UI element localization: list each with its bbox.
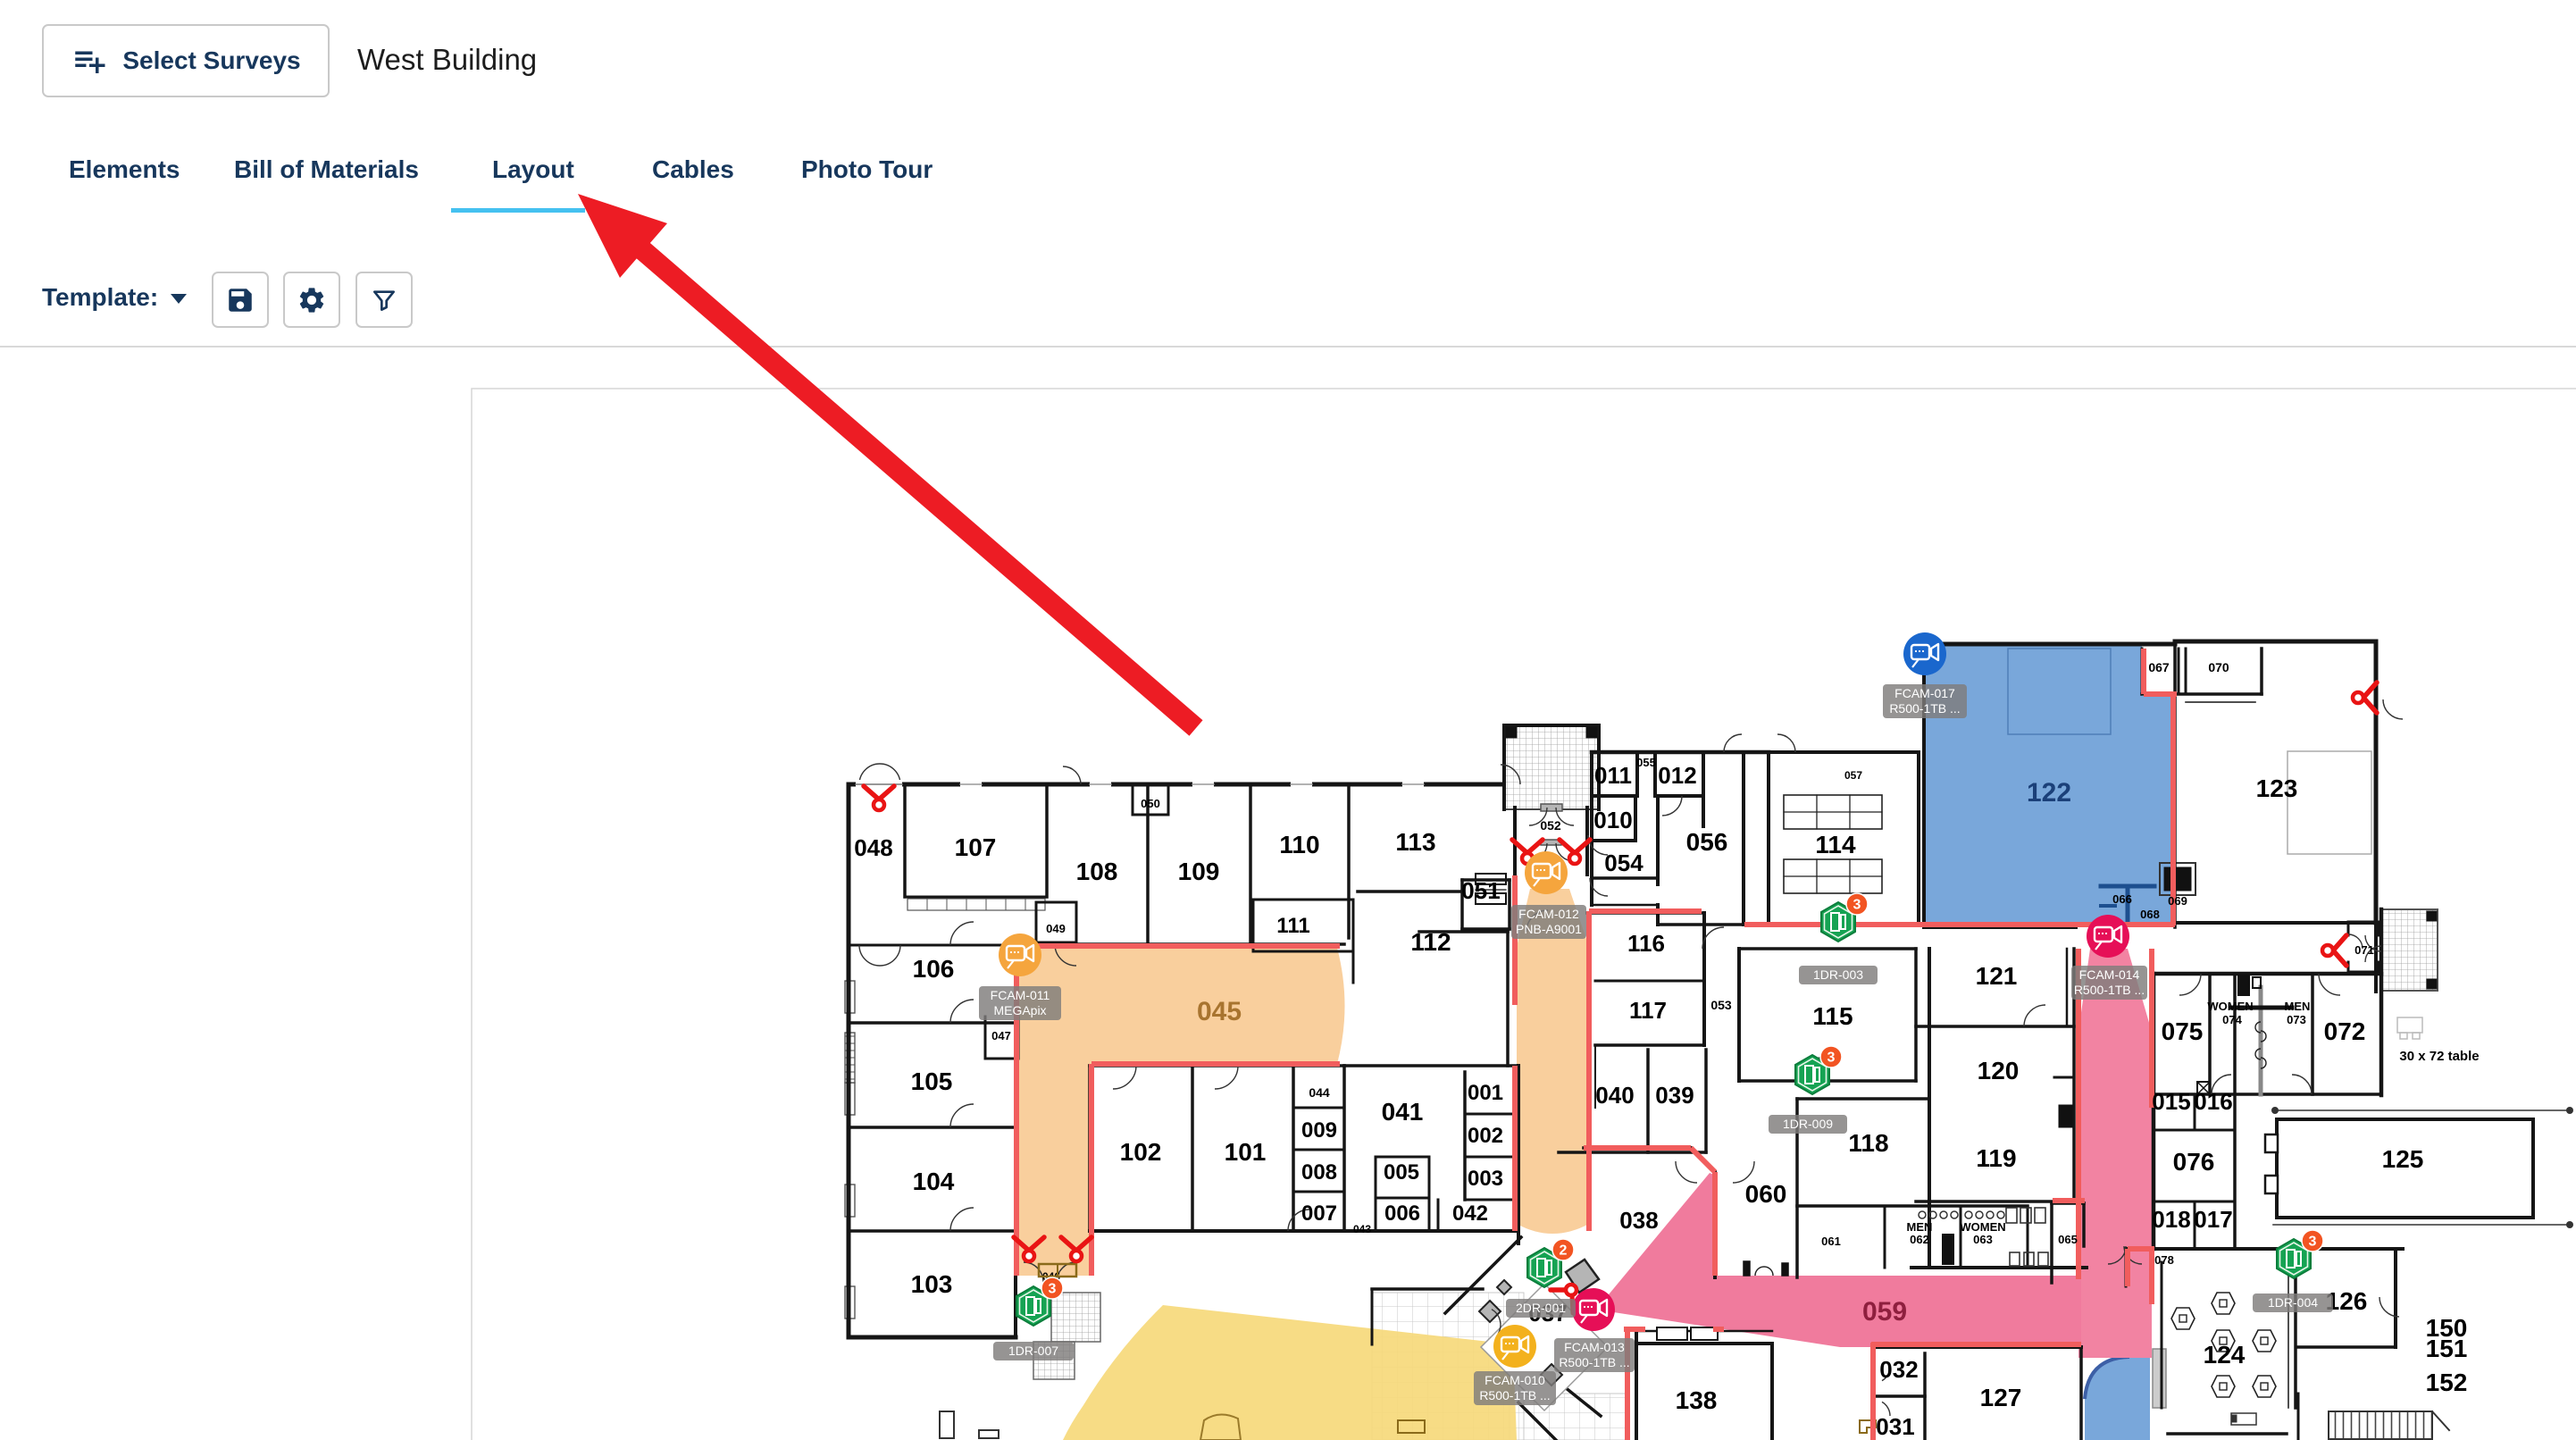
svg-text:R500-1TB ...: R500-1TB ... <box>2074 983 2145 997</box>
svg-text:3: 3 <box>2309 1235 2317 1250</box>
svg-text:010: 010 <box>1593 807 1632 833</box>
svg-text:1DR-009: 1DR-009 <box>1783 1117 1833 1131</box>
svg-text:065: 065 <box>2058 1233 2078 1246</box>
svg-text:3: 3 <box>1827 1051 1836 1066</box>
svg-text:053: 053 <box>1710 998 1732 1012</box>
svg-text:063: 063 <box>1973 1233 1993 1246</box>
svg-text:138: 138 <box>1676 1386 1718 1414</box>
svg-text:016: 016 <box>2194 1088 2232 1115</box>
svg-text:WOMEN: WOMEN <box>2207 1000 2253 1013</box>
svg-text:PNB-A9001: PNB-A9001 <box>1516 922 1582 936</box>
svg-text:006: 006 <box>1384 1201 1420 1226</box>
svg-text:043: 043 <box>1353 1223 1371 1235</box>
svg-text:032: 032 <box>1879 1356 1918 1383</box>
svg-text:120: 120 <box>1978 1057 2020 1084</box>
svg-text:1DR-004: 1DR-004 <box>2268 1295 2318 1310</box>
svg-text:FCAM-011: FCAM-011 <box>991 988 1050 1002</box>
svg-text:049: 049 <box>1046 922 1066 935</box>
svg-text:048: 048 <box>854 834 892 861</box>
svg-text:FCAM-012: FCAM-012 <box>1518 907 1579 921</box>
svg-text:30 x 72 table: 30 x 72 table <box>2399 1049 2479 1064</box>
svg-text:009: 009 <box>1301 1118 1337 1143</box>
svg-text:114: 114 <box>1815 831 1856 858</box>
svg-text:127: 127 <box>1980 1384 2022 1411</box>
svg-text:069: 069 <box>2168 894 2187 908</box>
svg-text:002: 002 <box>1468 1124 1503 1148</box>
svg-text:051: 051 <box>1461 877 1500 904</box>
svg-text:2DR-001: 2DR-001 <box>1516 1301 1566 1315</box>
svg-text:075: 075 <box>2162 1017 2204 1045</box>
svg-text:073: 073 <box>2287 1013 2306 1026</box>
svg-text:117: 117 <box>1629 997 1667 1024</box>
svg-text:031: 031 <box>1876 1413 1914 1440</box>
svg-text:067: 067 <box>2148 660 2170 674</box>
svg-text:060: 060 <box>1745 1180 1787 1208</box>
svg-text:108: 108 <box>1076 858 1118 885</box>
svg-text:MEGApix: MEGApix <box>993 1003 1046 1017</box>
svg-text:110: 110 <box>1279 831 1319 858</box>
svg-text:FCAM-014: FCAM-014 <box>2079 967 2140 982</box>
svg-text:3: 3 <box>1049 1282 1057 1297</box>
svg-text:106: 106 <box>913 955 955 983</box>
svg-text:WOMEN: WOMEN <box>1960 1220 2005 1234</box>
svg-text:008: 008 <box>1301 1160 1337 1185</box>
svg-text:113: 113 <box>1395 828 1435 856</box>
svg-text:119: 119 <box>1976 1144 2016 1172</box>
svg-text:R500-1TB ...: R500-1TB ... <box>1559 1355 1629 1369</box>
svg-text:062: 062 <box>1910 1233 1929 1246</box>
svg-text:116: 116 <box>1627 930 1665 957</box>
svg-text:115: 115 <box>1812 1002 1853 1030</box>
svg-text:MEN: MEN <box>1907 1220 1933 1234</box>
svg-text:R500-1TB ...: R500-1TB ... <box>1479 1388 1550 1402</box>
svg-text:078: 078 <box>2154 1253 2174 1267</box>
svg-text:103: 103 <box>911 1270 953 1298</box>
svg-text:122: 122 <box>2027 778 2071 808</box>
svg-text:109: 109 <box>1178 858 1220 885</box>
svg-text:124: 124 <box>2204 1341 2246 1369</box>
svg-text:012: 012 <box>1658 762 1696 789</box>
svg-text:3: 3 <box>1853 898 1861 913</box>
svg-text:104: 104 <box>913 1168 955 1195</box>
svg-text:118: 118 <box>1848 1129 1888 1157</box>
svg-text:112: 112 <box>1410 928 1451 956</box>
svg-text:054: 054 <box>1604 850 1643 876</box>
svg-text:015: 015 <box>2152 1088 2190 1115</box>
svg-text:125: 125 <box>2382 1145 2424 1173</box>
svg-text:055: 055 <box>1636 756 1656 769</box>
svg-text:038: 038 <box>1619 1207 1658 1234</box>
svg-text:071: 071 <box>2354 943 2374 957</box>
svg-text:044: 044 <box>1309 1085 1330 1100</box>
svg-text:005: 005 <box>1384 1160 1419 1185</box>
svg-text:111: 111 <box>1276 914 1309 938</box>
svg-text:121: 121 <box>1976 962 2018 990</box>
svg-text:072: 072 <box>2324 1017 2366 1045</box>
svg-text:052: 052 <box>1540 818 1561 833</box>
svg-text:056: 056 <box>1686 828 1728 856</box>
svg-text:068: 068 <box>2140 908 2160 921</box>
svg-text:039: 039 <box>1655 1082 1694 1109</box>
svg-text:059: 059 <box>1862 1297 1907 1327</box>
svg-text:040: 040 <box>1595 1082 1634 1109</box>
svg-text:R500-1TB ...: R500-1TB ... <box>1889 701 1960 716</box>
svg-text:018: 018 <box>2152 1206 2190 1233</box>
svg-text:011: 011 <box>1594 762 1632 789</box>
svg-text:1DR-007: 1DR-007 <box>1008 1344 1058 1358</box>
svg-text:FCAM-017: FCAM-017 <box>1894 686 1955 700</box>
svg-text:061: 061 <box>1821 1235 1841 1248</box>
svg-text:074: 074 <box>2222 1013 2242 1026</box>
svg-text:152: 152 <box>2426 1369 2468 1396</box>
svg-text:107: 107 <box>955 833 997 861</box>
svg-text:102: 102 <box>1120 1138 1162 1166</box>
svg-text:151: 151 <box>2426 1335 2468 1362</box>
svg-text:MEN: MEN <box>2285 1000 2311 1013</box>
svg-text:045: 045 <box>1197 997 1242 1026</box>
svg-text:057: 057 <box>1844 769 1862 782</box>
svg-text:105: 105 <box>911 1067 953 1095</box>
svg-text:066: 066 <box>2112 892 2132 906</box>
svg-text:041: 041 <box>1382 1098 1424 1126</box>
svg-text:003: 003 <box>1468 1167 1503 1191</box>
svg-text:2: 2 <box>1560 1243 1568 1259</box>
svg-text:007: 007 <box>1301 1201 1337 1226</box>
svg-text:042: 042 <box>1452 1201 1488 1226</box>
svg-text:123: 123 <box>2256 774 2298 802</box>
svg-text:FCAM-010: FCAM-010 <box>1485 1373 1545 1387</box>
svg-text:076: 076 <box>2173 1148 2215 1176</box>
svg-text:047: 047 <box>991 1029 1011 1042</box>
svg-text:101: 101 <box>1225 1138 1267 1166</box>
svg-text:070: 070 <box>2208 660 2229 674</box>
svg-text:1DR-003: 1DR-003 <box>1813 967 1863 982</box>
svg-text:017: 017 <box>2194 1206 2232 1233</box>
svg-text:050: 050 <box>1141 797 1160 810</box>
svg-text:001: 001 <box>1468 1081 1503 1105</box>
svg-text:FCAM-013: FCAM-013 <box>1564 1340 1625 1354</box>
